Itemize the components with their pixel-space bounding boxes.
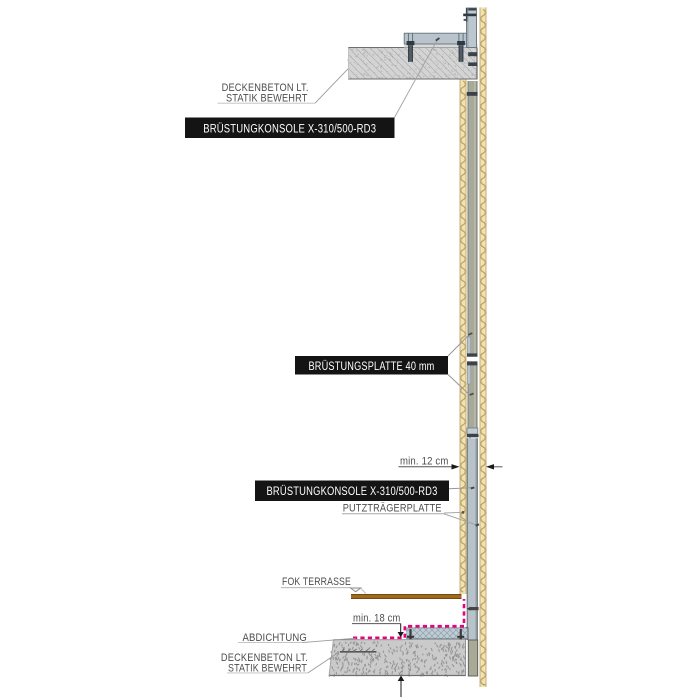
svg-text:FOK TERRASSE: FOK TERRASSE [282,576,351,588]
svg-text:ABDICHTUNG: ABDICHTUNG [243,632,308,644]
svg-text:BRÜSTUNGKONSOLE X-310/500-RD3: BRÜSTUNGKONSOLE X-310/500-RD3 [267,484,438,498]
svg-text:BRÜSTUNGKONSOLE X-310/500-RD3: BRÜSTUNGKONSOLE X-310/500-RD3 [203,121,376,135]
svg-text:BRÜSTUNGSPLATTE 40 mm: BRÜSTUNGSPLATTE 40 mm [309,359,435,373]
svg-text:min. 12 cm: min. 12 cm [400,455,449,467]
svg-text:min. 18 cm: min. 18 cm [353,612,401,624]
svg-text:PUTZTRÄGERPLATTE: PUTZTRÄGERPLATTE [343,502,442,514]
svg-text:STATIK BEWEHRT: STATIK BEWEHRT [226,93,308,105]
